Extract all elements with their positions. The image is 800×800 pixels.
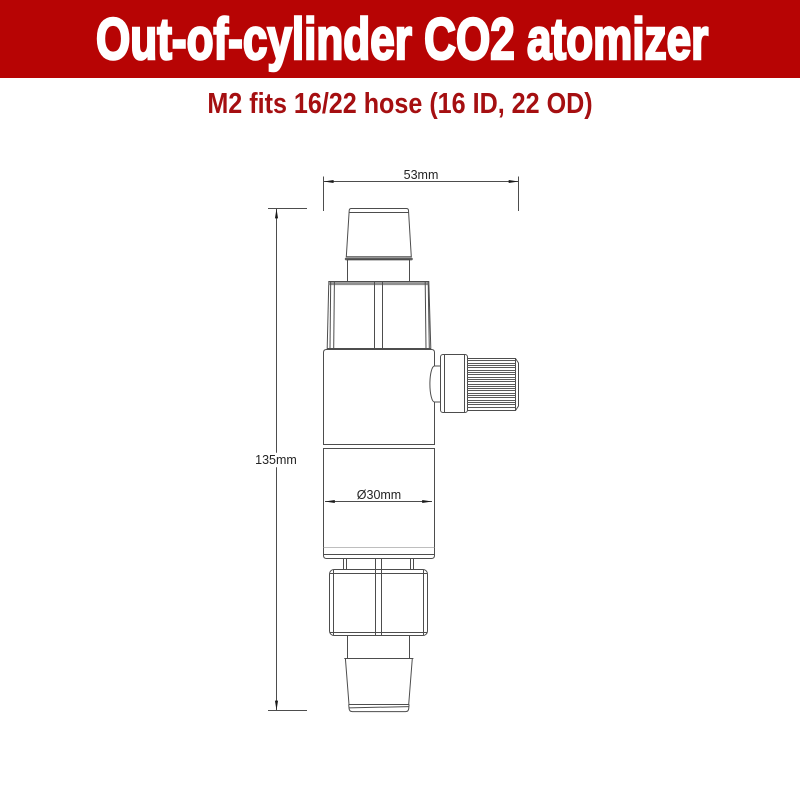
svg-text:53mm: 53mm: [404, 168, 439, 182]
svg-text:Ø30mm: Ø30mm: [357, 488, 401, 502]
svg-text:135mm: 135mm: [255, 453, 297, 467]
